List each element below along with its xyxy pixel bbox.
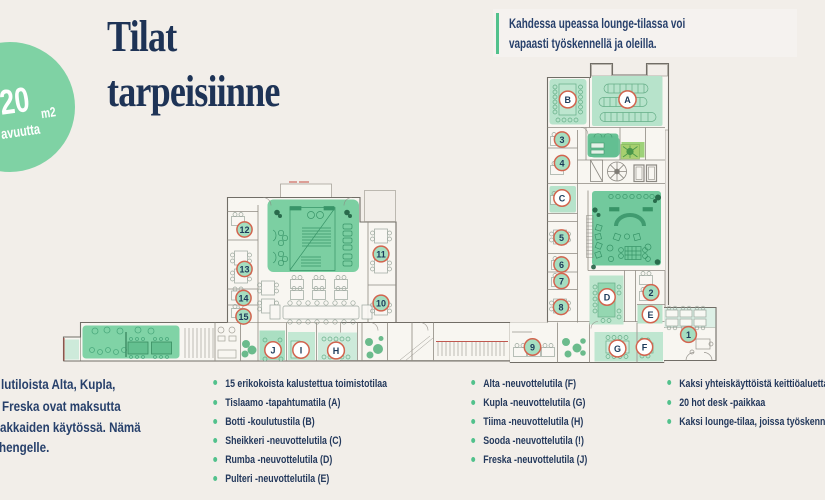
svg-text:J: J	[270, 346, 275, 356]
svg-text:A: A	[624, 95, 631, 105]
svg-text:3: 3	[559, 135, 564, 145]
svg-text:1: 1	[686, 330, 691, 340]
svg-text:4: 4	[559, 159, 564, 169]
svg-text:C: C	[559, 194, 566, 204]
svg-text:H: H	[333, 346, 340, 356]
svg-text:11: 11	[376, 250, 386, 260]
svg-text:D: D	[604, 293, 611, 303]
svg-text:F: F	[642, 343, 648, 353]
svg-text:15: 15	[238, 312, 248, 322]
svg-text:14: 14	[238, 294, 248, 304]
svg-text:B: B	[565, 95, 572, 105]
svg-text:8: 8	[558, 303, 563, 313]
svg-text:2: 2	[648, 288, 653, 298]
svg-text:5: 5	[559, 233, 564, 243]
svg-text:E: E	[647, 310, 653, 320]
svg-text:12: 12	[239, 225, 249, 235]
svg-text:13: 13	[239, 265, 249, 275]
svg-text:I: I	[300, 346, 303, 356]
svg-text:9: 9	[530, 343, 535, 353]
svg-text:6: 6	[559, 260, 564, 270]
svg-text:7: 7	[559, 277, 564, 287]
svg-text:10: 10	[376, 299, 386, 309]
svg-text:G: G	[614, 344, 621, 354]
